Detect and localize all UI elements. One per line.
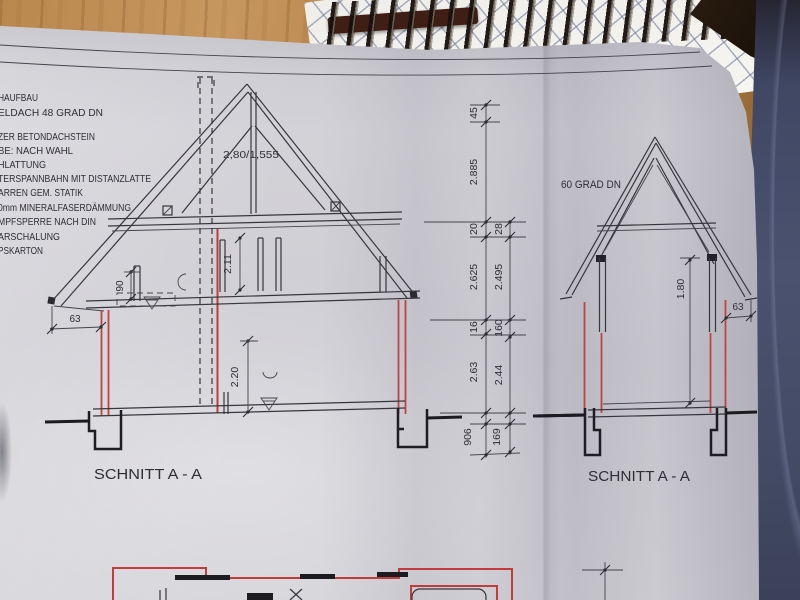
eave-overhang-dim-right: 63 [732, 302, 744, 313]
note-line: PSKARTON [0, 245, 43, 257]
chain-dim: 2.885 [468, 159, 480, 185]
note-line: ARSCHALUNG [0, 231, 60, 243]
chain-dim: 169 [491, 428, 503, 446]
architectural-section-drawing: HAUFBAU ELDACH 48 GRAD DN ZER BETONDACHS… [0, 0, 800, 600]
collar-beam-and-truss [108, 92, 402, 231]
chain-dim: 2.44 [493, 365, 505, 386]
right-section-drawing: 1.80 63 60 GRAD DN SCHNITT A - A [536, 137, 757, 485]
knee-wall-dim: 90 [115, 280, 126, 292]
left-internal-dimensions: 90 2.11 2.20 63 [47, 233, 258, 417]
note-line: HLATTUNG [0, 159, 46, 171]
ground-slab-and-footings [45, 401, 585, 449]
right-walls [585, 254, 726, 413]
exterior-walls-red [102, 300, 406, 416]
note-line: ARREN GEM. STATIK [0, 187, 83, 199]
floor-plan-sliver [113, 562, 623, 600]
eave-overhang-dim-left: 63 [69, 314, 81, 325]
chain-dim: 2.495 [493, 264, 505, 290]
ground-room-height-dim: 2.20 [229, 367, 241, 388]
sheet-border-lines [0, 45, 712, 75]
level-markers [117, 274, 277, 410]
room-height-dim: 1.80 [675, 279, 687, 300]
note-line: HAUFBAU [0, 92, 38, 104]
note-line: TERSPANNBAHN MIT DISTANZLATTE [0, 173, 151, 185]
right-roof [560, 137, 757, 300]
construction-notes: HAUFBAU ELDACH 48 GRAD DN ZER BETONDACHS… [0, 92, 151, 257]
screenshot-root: HAUFBAU ELDACH 48 GRAD DN ZER BETONDACHS… [0, 0, 800, 600]
chain-dim: 2.63 [468, 362, 480, 383]
note-line: ELDACH 48 GRAD DN [0, 107, 103, 119]
attic-room-height-dim: 2.11 [222, 254, 234, 274]
chain-dim: 16 [468, 321, 480, 333]
right-slab-and-footings [536, 401, 757, 455]
attic-floor-slab [86, 291, 420, 308]
note-line: ZER BETONDACHSTEIN [0, 131, 95, 143]
note-line: MPFSPERRE NACH DIN [0, 216, 96, 228]
roof-pitch-label: 60 GRAD DN [561, 179, 621, 191]
right-section-title: SCHNITT A - A [588, 469, 690, 485]
dimension-chains: 45 2.885 20 2.625 16 2.63 906 28 2.495 1… [424, 100, 526, 460]
note-line: 0mm MINERALFASERDÄMMUNG [0, 202, 131, 214]
chain-dim: 45 [468, 107, 480, 119]
chain-dim: 28 [493, 223, 505, 235]
note-line: BE: NACH WAHL [0, 145, 73, 157]
chimney-dashed-lines [198, 77, 228, 414]
truss-dimension-label: 2,80/1,555 [223, 149, 279, 161]
chain-dim: 906 [462, 428, 474, 446]
chain-dim: 160 [493, 319, 505, 337]
left-section-title: SCHNITT A - A [94, 467, 202, 483]
chain-dim: 2.625 [468, 264, 480, 290]
knee-walls [134, 256, 386, 301]
chain-dim: 20 [468, 223, 480, 235]
